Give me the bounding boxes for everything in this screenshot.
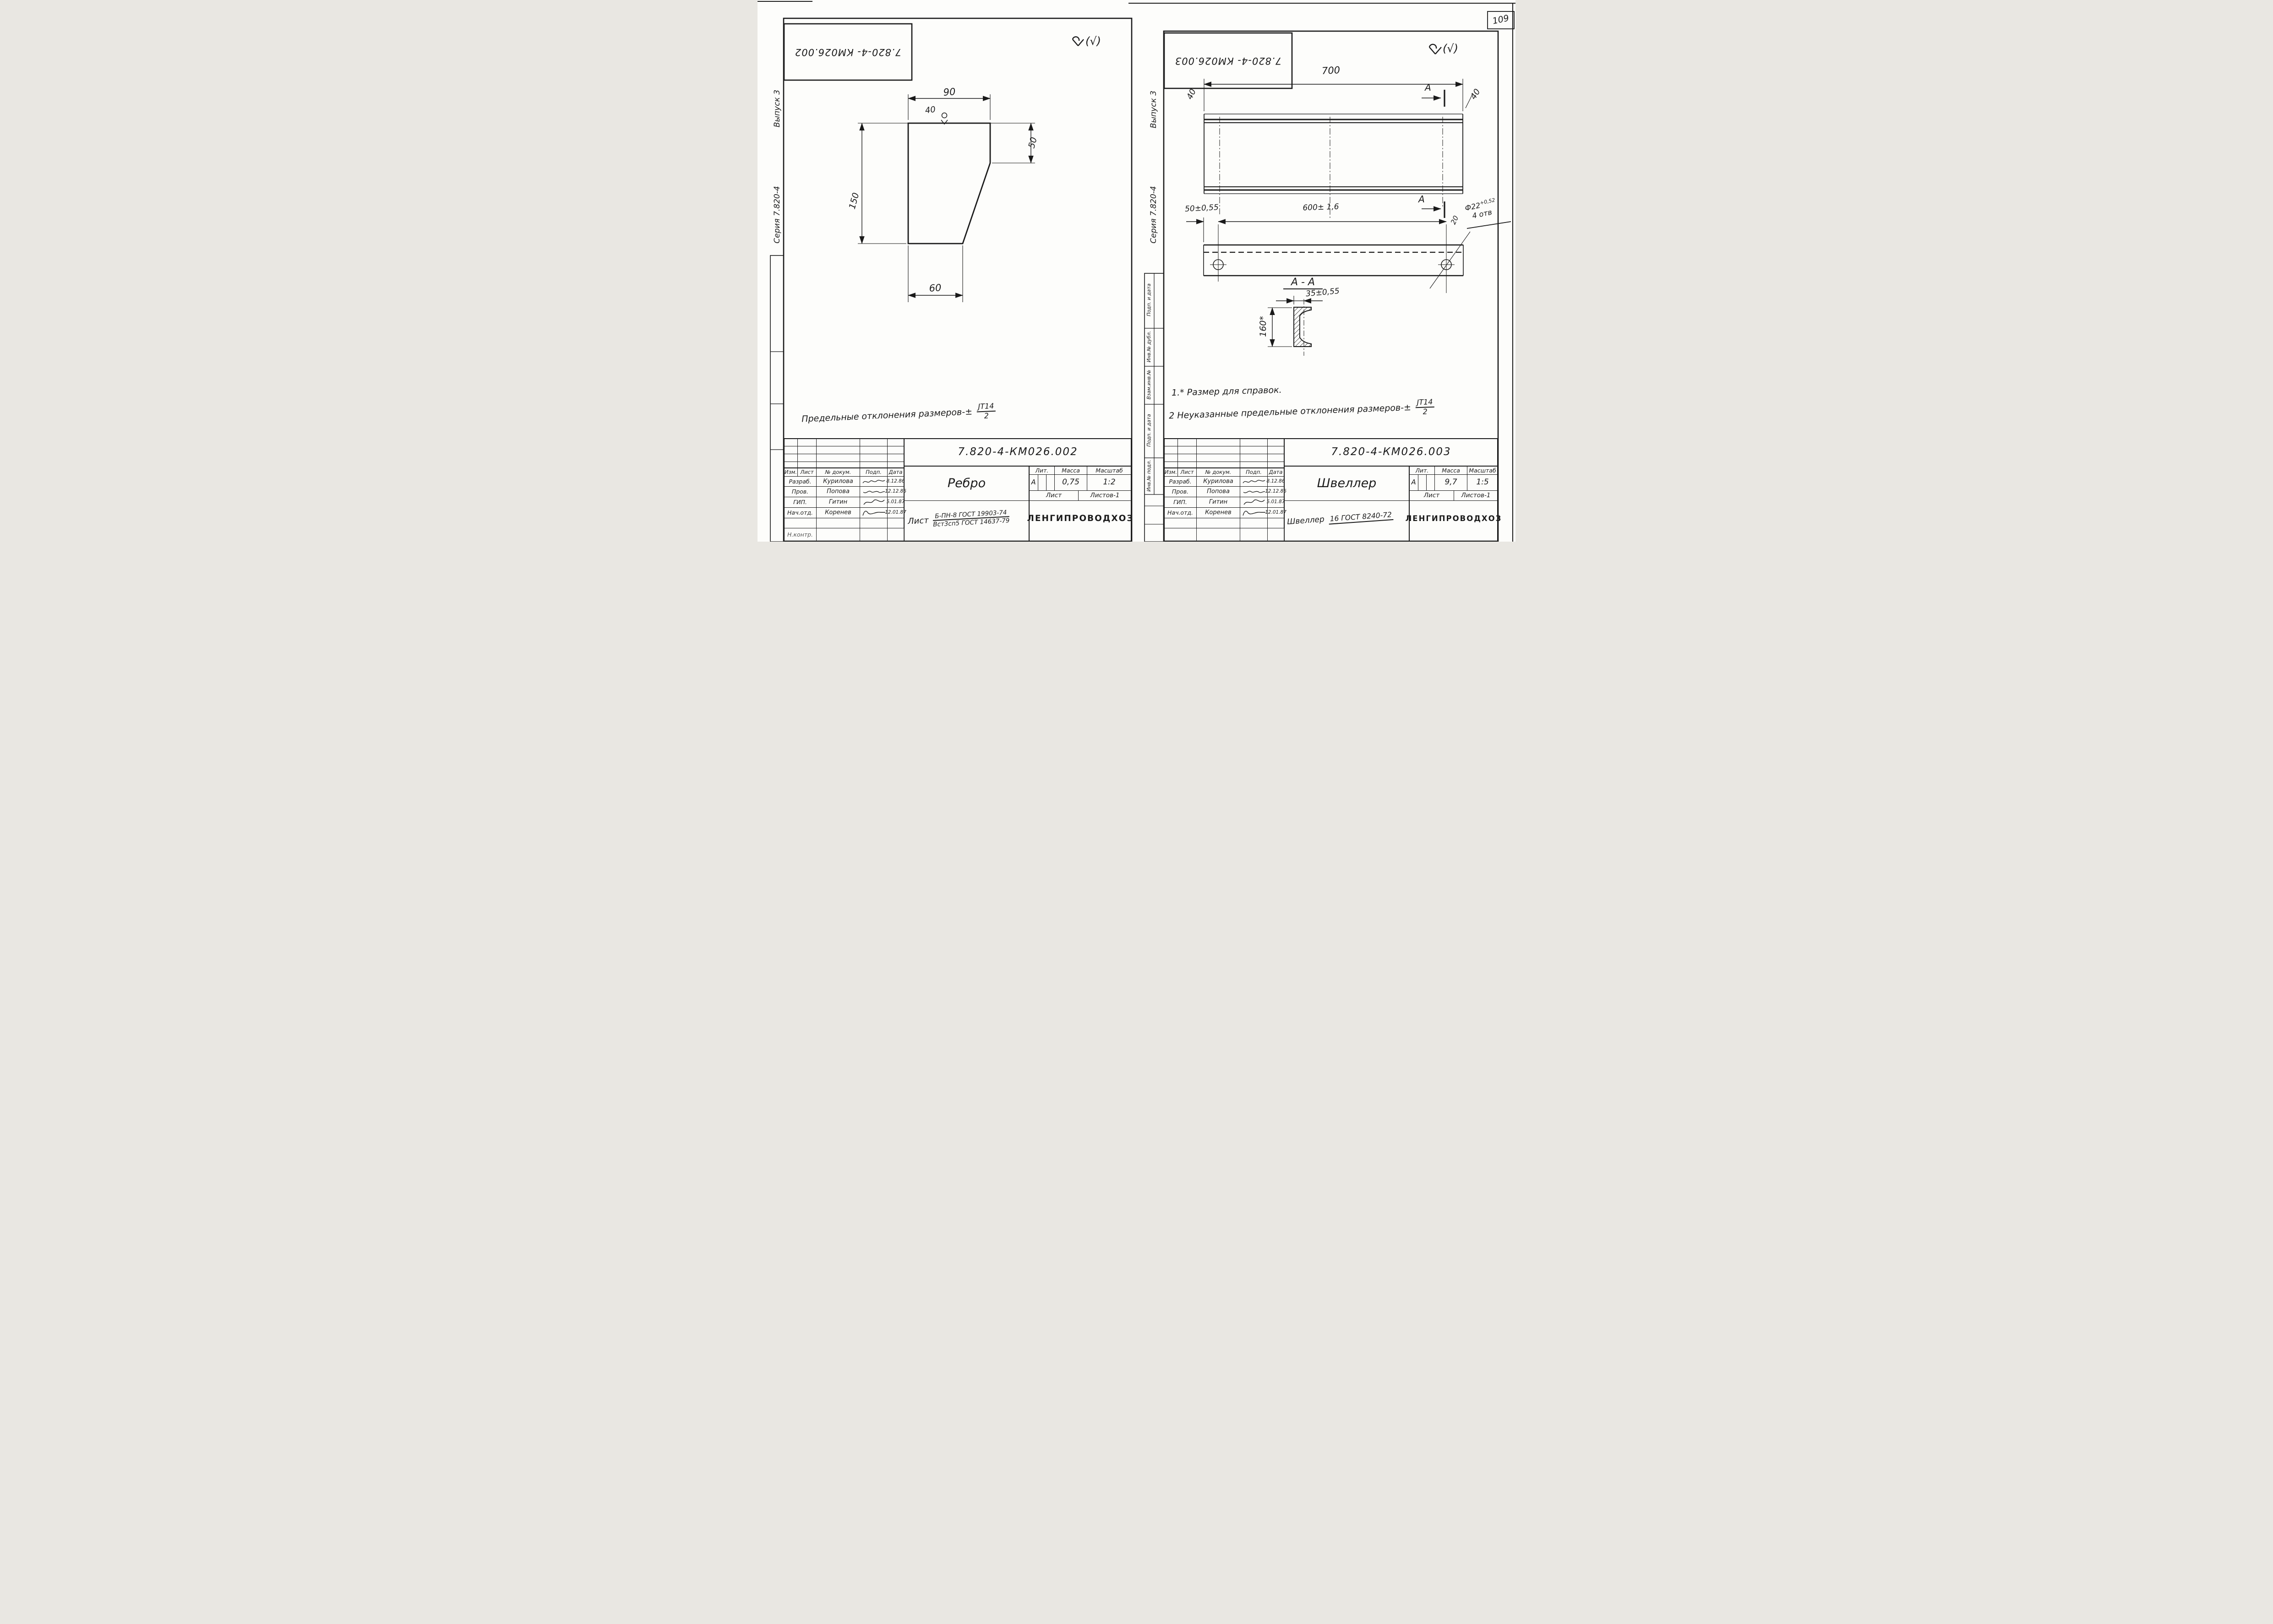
note-text: Предельные отклонения размеров-± bbox=[801, 407, 973, 424]
sheet-label: Лист bbox=[1029, 490, 1079, 501]
right-organization: ЛЕНГИПРОВОДХОЗ bbox=[1409, 512, 1498, 526]
frac-bottom: 2 bbox=[1416, 407, 1434, 416]
tb-partial-role: Н.контр. bbox=[784, 528, 817, 542]
tb-empty-date bbox=[887, 518, 904, 528]
tb-partial-date bbox=[887, 528, 904, 542]
tb-header-izm: Изм. bbox=[784, 468, 798, 477]
right-roughness-suffix: (√) bbox=[1443, 43, 1458, 54]
frac-top: JT14 bbox=[976, 402, 996, 413]
dim-60: 60 bbox=[921, 282, 949, 293]
tb-partial-name bbox=[1196, 528, 1240, 542]
tb-role: Пров. bbox=[784, 486, 817, 497]
material-prefix: Лист bbox=[908, 516, 929, 526]
tb-empty-role bbox=[1164, 518, 1197, 528]
tb-name: Курилова bbox=[1196, 476, 1240, 487]
right-change-grid bbox=[1164, 438, 1284, 468]
tb-name: Попова bbox=[816, 486, 860, 497]
tb-partial-name bbox=[816, 528, 860, 542]
tb-date: 8.12.86 bbox=[1267, 476, 1284, 487]
tb-name: Гитин bbox=[816, 497, 860, 508]
side-label-podp-data-2: Подп. и дата bbox=[1145, 407, 1154, 453]
tb-header-data: Дата bbox=[1267, 468, 1284, 477]
mass-value: 0,75 bbox=[1054, 474, 1087, 491]
tb-date: 8.12.86 bbox=[887, 476, 904, 487]
tb-partial-sig bbox=[1240, 528, 1268, 542]
side-label-podp-data-1: Подп. и дата bbox=[1145, 277, 1154, 323]
dim-90: 90 bbox=[935, 86, 963, 98]
tb-header-podp: Подп. bbox=[1240, 468, 1268, 477]
tb-role: Нач.отд. bbox=[1164, 507, 1197, 518]
right-stamp-code: 7.820-4- КМ026.003 bbox=[1166, 35, 1290, 87]
tb-date: 12.12.86 bbox=[887, 486, 904, 497]
right-margin-issue: Выпуск 3 bbox=[1149, 77, 1159, 141]
left-organization: ЛЕНГИПРОВОДХОЗ bbox=[1029, 512, 1132, 526]
scale-label: Масштаб bbox=[1467, 466, 1498, 475]
right-margin-series: Серия 7.820-4 bbox=[1149, 174, 1159, 256]
dim-700: 700 bbox=[1312, 64, 1349, 77]
dim-40-mark: 40 bbox=[925, 105, 936, 115]
mass-label: Масса bbox=[1054, 466, 1087, 475]
tb-header-data: Дата bbox=[887, 468, 904, 477]
tb-role: Нач.отд. bbox=[784, 507, 817, 518]
side-label-inv-dubl: Инв.№ дубл. bbox=[1145, 326, 1154, 367]
tb-empty-sig bbox=[860, 518, 888, 528]
tb-partial-sig bbox=[860, 528, 888, 542]
tb-role: ГИП. bbox=[784, 497, 817, 508]
tb-date: 5.01.87 bbox=[887, 497, 904, 508]
tb-header-izm: Изм. bbox=[1164, 468, 1178, 477]
scale-label: Масштаб bbox=[1087, 466, 1132, 475]
right-doc-number: 7.820-4-КМ026.003 bbox=[1284, 438, 1498, 466]
lit-value: А bbox=[1029, 474, 1038, 491]
mass-value: 9,7 bbox=[1434, 474, 1467, 491]
frac-top: JT14 bbox=[1415, 398, 1434, 408]
dim-hole-spacing: 600± 1,6 bbox=[1293, 202, 1349, 213]
left-doc-number: 7.820-4-КМ026.002 bbox=[904, 438, 1132, 466]
section-label-bottom: А bbox=[1415, 194, 1428, 204]
tb-date: 12.01.87 bbox=[887, 507, 904, 518]
tb-name: Гитин bbox=[1196, 497, 1240, 508]
tb-header-list: Лист bbox=[797, 468, 817, 477]
sheets-label: Листов-1 bbox=[1078, 490, 1132, 501]
right-part-name: Швеллер bbox=[1284, 466, 1409, 501]
left-stamp-code: 7.820-4- КМ026.002 bbox=[786, 26, 910, 78]
signature bbox=[1240, 507, 1268, 518]
tb-role: Пров. bbox=[1164, 486, 1197, 497]
tb-date: 5.01.87 bbox=[1267, 497, 1284, 508]
tb-name: Курилова bbox=[816, 476, 860, 487]
signature bbox=[860, 486, 888, 497]
tb-empty-date bbox=[1267, 518, 1284, 528]
scanned-drawing-page: 109 7.820-4- КМ026.002 (√) Выпуск 3 Сери… bbox=[758, 0, 1515, 542]
scale-value: 1:5 bbox=[1467, 474, 1498, 491]
tb-partial-date bbox=[1267, 528, 1284, 542]
tb-name: Коренев bbox=[1196, 507, 1240, 518]
tb-header-podp: Подп. bbox=[860, 468, 888, 477]
signature bbox=[1240, 476, 1268, 487]
signature bbox=[1240, 486, 1268, 497]
side-label-inv-podl: Инв.№ подл. bbox=[1145, 454, 1154, 497]
tb-role: Разраб. bbox=[784, 476, 817, 487]
tb-name: Коренев bbox=[816, 507, 860, 518]
lit-label: Лит. bbox=[1409, 466, 1435, 475]
left-roughness-suffix: (√) bbox=[1085, 36, 1101, 47]
section-title: А - А bbox=[1283, 277, 1323, 289]
tb-empty-name bbox=[816, 518, 860, 528]
tb-header-ndokum: № докум. bbox=[816, 468, 860, 477]
left-part-name: Ребро bbox=[904, 466, 1029, 501]
signature bbox=[860, 476, 888, 487]
scale-value: 1:2 bbox=[1087, 474, 1132, 491]
left-margin-issue: Выпуск 3 bbox=[773, 76, 783, 141]
signature bbox=[1240, 497, 1268, 508]
left-change-grid bbox=[784, 438, 904, 468]
section-label-top: А bbox=[1422, 82, 1434, 92]
left-margin-series: Серия 7.820-4 bbox=[773, 174, 783, 256]
signature bbox=[860, 497, 888, 508]
tb-date: 12.12.86 bbox=[1267, 486, 1284, 497]
sheet-label: Лист bbox=[1409, 490, 1454, 501]
tb-empty-name bbox=[1196, 518, 1240, 528]
tb-role: ГИП. bbox=[1164, 497, 1197, 508]
lit-label: Лит. bbox=[1029, 466, 1055, 475]
lit-value: А bbox=[1409, 474, 1418, 491]
signature bbox=[860, 507, 888, 518]
tb-empty-role bbox=[784, 518, 817, 528]
tb-partial-role bbox=[1164, 528, 1197, 542]
tb-role: Разраб. bbox=[1164, 476, 1197, 487]
frac-bottom: 2 bbox=[977, 412, 996, 421]
tb-date: 12.01.87 bbox=[1267, 507, 1284, 518]
tb-name: Попова bbox=[1196, 486, 1240, 497]
tb-header-ndokum: № докум. bbox=[1196, 468, 1240, 477]
side-label-vzam-inv: Взам.инв.№ bbox=[1145, 364, 1154, 405]
tb-header-list: Лист bbox=[1177, 468, 1197, 477]
dim-height: 160* bbox=[1259, 309, 1269, 344]
sheets-label: Листов-1 bbox=[1454, 490, 1498, 501]
tb-empty-sig bbox=[1240, 518, 1268, 528]
mass-label: Масса bbox=[1434, 466, 1467, 475]
